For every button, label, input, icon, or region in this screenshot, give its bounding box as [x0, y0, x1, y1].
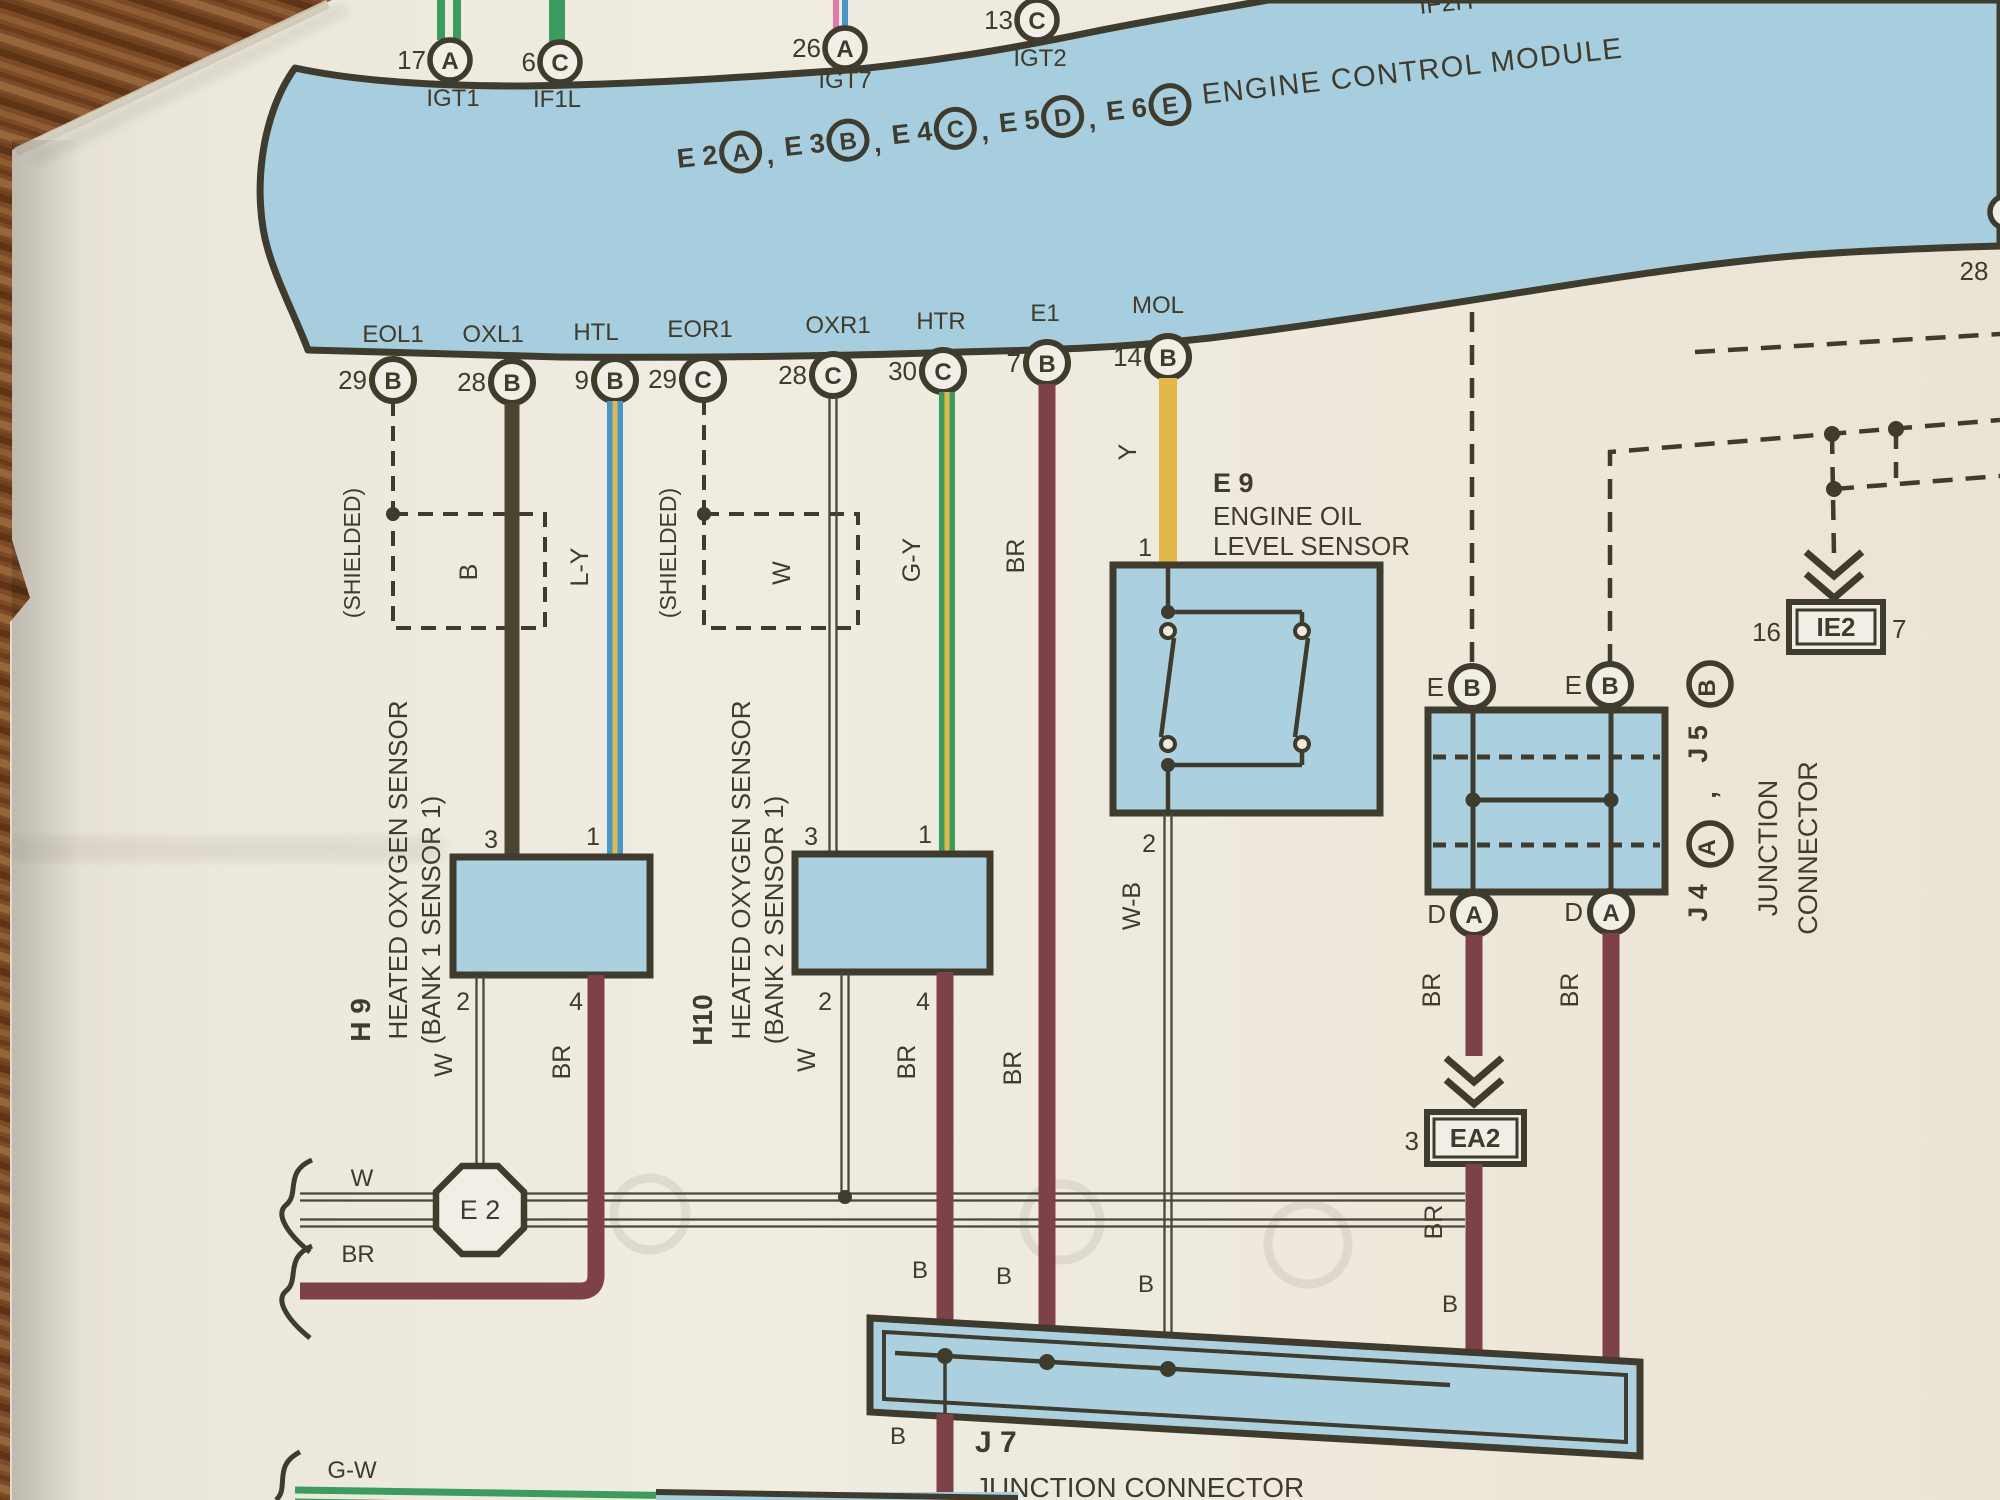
wire-code-br: BR — [1420, 1205, 1448, 1240]
pin-letter: C — [551, 50, 568, 77]
pin-label-if1l: IF1L — [533, 86, 581, 113]
pin-letter: C — [1028, 8, 1045, 35]
pin-letter: C — [694, 367, 711, 394]
connector-label: E 2 — [675, 140, 719, 174]
e9-id: E 9 — [1213, 468, 1254, 498]
wire-code-ly: L-Y — [566, 547, 594, 586]
h10-name2: (BANK 2 SENSOR 1) — [759, 796, 789, 1045]
page-crease — [12, 836, 442, 862]
pin-letter: B — [503, 370, 520, 397]
j45-a-letter: A — [1694, 839, 1721, 856]
j45-b-id: J 5 — [1683, 725, 1713, 763]
pin-number: 9 — [575, 365, 589, 395]
pin-letter: B — [1463, 675, 1480, 702]
j45-pin-d2: D — [1564, 897, 1583, 927]
pin-letter: B — [1038, 351, 1055, 378]
pin-number: 29 — [338, 365, 367, 395]
wire-pink — [833, 0, 839, 28]
wire-code-br: BR — [341, 1241, 374, 1268]
j45-pin-e1: E — [1427, 672, 1444, 702]
pin-number: 26 — [792, 33, 821, 63]
e9-name2: LEVEL SENSOR — [1213, 531, 1410, 561]
j45-b-letter: B — [1694, 679, 1721, 696]
junction-dot — [1160, 1361, 1176, 1377]
wire-code-w: W — [793, 1048, 821, 1072]
connector-letter: E — [1161, 92, 1180, 121]
pin-label-e1: E1 — [1030, 300, 1059, 327]
pin-letter: A — [441, 48, 458, 75]
pin-label-eor1: EOR1 — [667, 316, 732, 343]
pin-letter: B — [1601, 673, 1618, 700]
j45-name2: CONNECTOR — [1793, 761, 1823, 935]
pin-label-igt7: IGT7 — [818, 67, 871, 94]
h9-id: H 9 — [345, 998, 376, 1042]
pin-number: 7 — [1007, 348, 1021, 378]
wire-code-br: BR — [1556, 973, 1584, 1008]
h9-pin3: 3 — [484, 826, 498, 854]
junction-dot — [937, 1348, 953, 1364]
wire-code-w: W — [430, 1053, 458, 1077]
j45-a-id: J 4 — [1683, 884, 1713, 922]
pin-number: 30 — [888, 356, 917, 386]
wire-code-w: W — [351, 1165, 374, 1192]
connector-label: E 3 — [783, 128, 827, 162]
wire-code-b: B — [455, 564, 483, 581]
wire-green-2 — [453, 0, 461, 40]
junction-dot — [1604, 793, 1619, 808]
pin-letter: B — [384, 368, 401, 395]
connector-label: E 6 — [1105, 92, 1149, 126]
j45-name1: JUNCTION — [1753, 780, 1783, 917]
wire-code-b: B — [912, 1257, 928, 1284]
pin-label-oxr1: OXR1 — [805, 312, 870, 339]
h10-connector-box — [795, 854, 990, 972]
wire-code-y: Y — [1114, 443, 1142, 460]
wire-code-b: B — [890, 1423, 906, 1450]
j45-pin-d1: D — [1427, 899, 1446, 929]
shielded-note: (SHIELDED) — [655, 488, 681, 618]
h10-name1: HEATED OXYGEN SENSOR — [726, 700, 756, 1039]
wire-code-br: BR — [1418, 973, 1446, 1008]
connector-letter: C — [945, 115, 965, 144]
junction-dot — [1888, 421, 1904, 437]
pin-letter: C — [824, 363, 841, 390]
connector-letter: B — [838, 127, 858, 156]
pin-circle-right-edge — [1990, 196, 2000, 228]
h9-pin2: 2 — [456, 988, 470, 1016]
h10-id: H10 — [687, 994, 718, 1045]
wire-green-3 — [549, 0, 565, 42]
pin-number: 6 — [522, 47, 536, 77]
shielded-note: (SHIELDED) — [339, 488, 365, 618]
ie2-id: IE2 — [1816, 612, 1855, 642]
bottom-blue-box-sliver — [656, 1492, 1018, 1500]
e9-pin-bottom: 2 — [1142, 830, 1156, 858]
h10-pin1: 1 — [918, 821, 932, 849]
e9-pin-top: 1 — [1138, 534, 1152, 562]
pin-number: 29 — [648, 364, 677, 394]
h9-connector-box — [453, 857, 650, 975]
j7-id: J 7 — [975, 1426, 1017, 1459]
j45-comma: , — [1692, 791, 1722, 799]
wire-blue — [842, 0, 848, 28]
wire-code-br: BR — [999, 1051, 1027, 1086]
e9-name1: ENGINE OIL — [1213, 501, 1362, 531]
connector-label: E 4 — [890, 116, 934, 150]
e9-box — [1113, 565, 1380, 813]
h10-pin2: 2 — [818, 988, 832, 1016]
pin-number: 14 — [1113, 342, 1142, 372]
wire-code-br: BR — [1002, 539, 1030, 574]
junction-dot — [1466, 793, 1481, 808]
pin-number: 28 — [457, 367, 486, 397]
ie2-left-num: 16 — [1752, 617, 1781, 647]
wire-code-br: BR — [548, 1045, 576, 1080]
h9-name1: HEATED OXYGEN SENSOR — [383, 700, 413, 1039]
ea2-num: 3 — [1405, 1126, 1419, 1156]
junction-dot — [1824, 426, 1840, 442]
h9-name2: (BANK 1 SENSOR 1) — [416, 796, 446, 1045]
wire-code-b: B — [996, 1263, 1012, 1290]
pin-number-right-edge: 28 — [1960, 256, 1989, 286]
pin-label-mol: MOL — [1132, 292, 1184, 319]
wire-code-gy: G-Y — [898, 537, 926, 582]
pin-number: 13 — [984, 5, 1013, 35]
j45-pin-e2: E — [1565, 670, 1582, 700]
page-left-curl-shadow — [12, 140, 82, 1500]
wire-code-b: B — [1138, 1271, 1154, 1298]
h10-pin3: 3 — [804, 823, 818, 851]
wire-code-b: B — [1442, 1291, 1458, 1318]
pin-letter: B — [606, 368, 623, 395]
ie2-right-num: 7 — [1892, 614, 1906, 644]
ea2-id: EA2 — [1450, 1123, 1501, 1153]
pin-number: 17 — [397, 45, 426, 75]
pin-letter: C — [934, 359, 951, 386]
connector-letter: A — [731, 139, 751, 168]
wire-code-wb: W-B — [1118, 882, 1146, 930]
junction-dot — [838, 1190, 852, 1204]
connector-letter: D — [1053, 104, 1073, 133]
pin-label-eol1: EOL1 — [362, 321, 423, 348]
pin-label-htr: HTR — [916, 308, 965, 335]
h9-pin4: 4 — [569, 988, 583, 1016]
pin-label-igt2: IGT2 — [1013, 45, 1066, 72]
pin-label-igt1: IGT1 — [426, 85, 479, 112]
wire-code-w: W — [768, 561, 796, 585]
wire-green-1 — [437, 0, 445, 40]
wiring-diagram-canvas: ENGINE CONTROL MODULE IF2H E 2 A , E 3 B… — [0, 0, 2000, 1500]
pin-letter: A — [836, 36, 853, 63]
pin-label-oxl1: OXL1 — [462, 321, 523, 348]
junction-dot — [1039, 1354, 1055, 1370]
pin-letter: A — [1602, 900, 1619, 927]
pin-number: 28 — [778, 360, 807, 390]
wire-code-br: BR — [893, 1045, 921, 1080]
h9-pin1: 1 — [586, 823, 600, 851]
wire-code-gw: G-W — [327, 1457, 377, 1484]
photo-of-wiring-diagram: ENGINE CONTROL MODULE IF2H E 2 A , E 3 B… — [0, 0, 2000, 1500]
h10-pin4: 4 — [916, 988, 930, 1016]
pin-label-htl: HTL — [573, 319, 618, 346]
j7-name: JUNCTION CONNECTOR — [975, 1472, 1304, 1500]
pin-letter: B — [1159, 345, 1176, 372]
e2-id: E 2 — [460, 1195, 501, 1225]
junction-dot — [1826, 481, 1842, 497]
connector-label: E 5 — [997, 104, 1041, 138]
pin-letter: A — [1465, 902, 1482, 929]
